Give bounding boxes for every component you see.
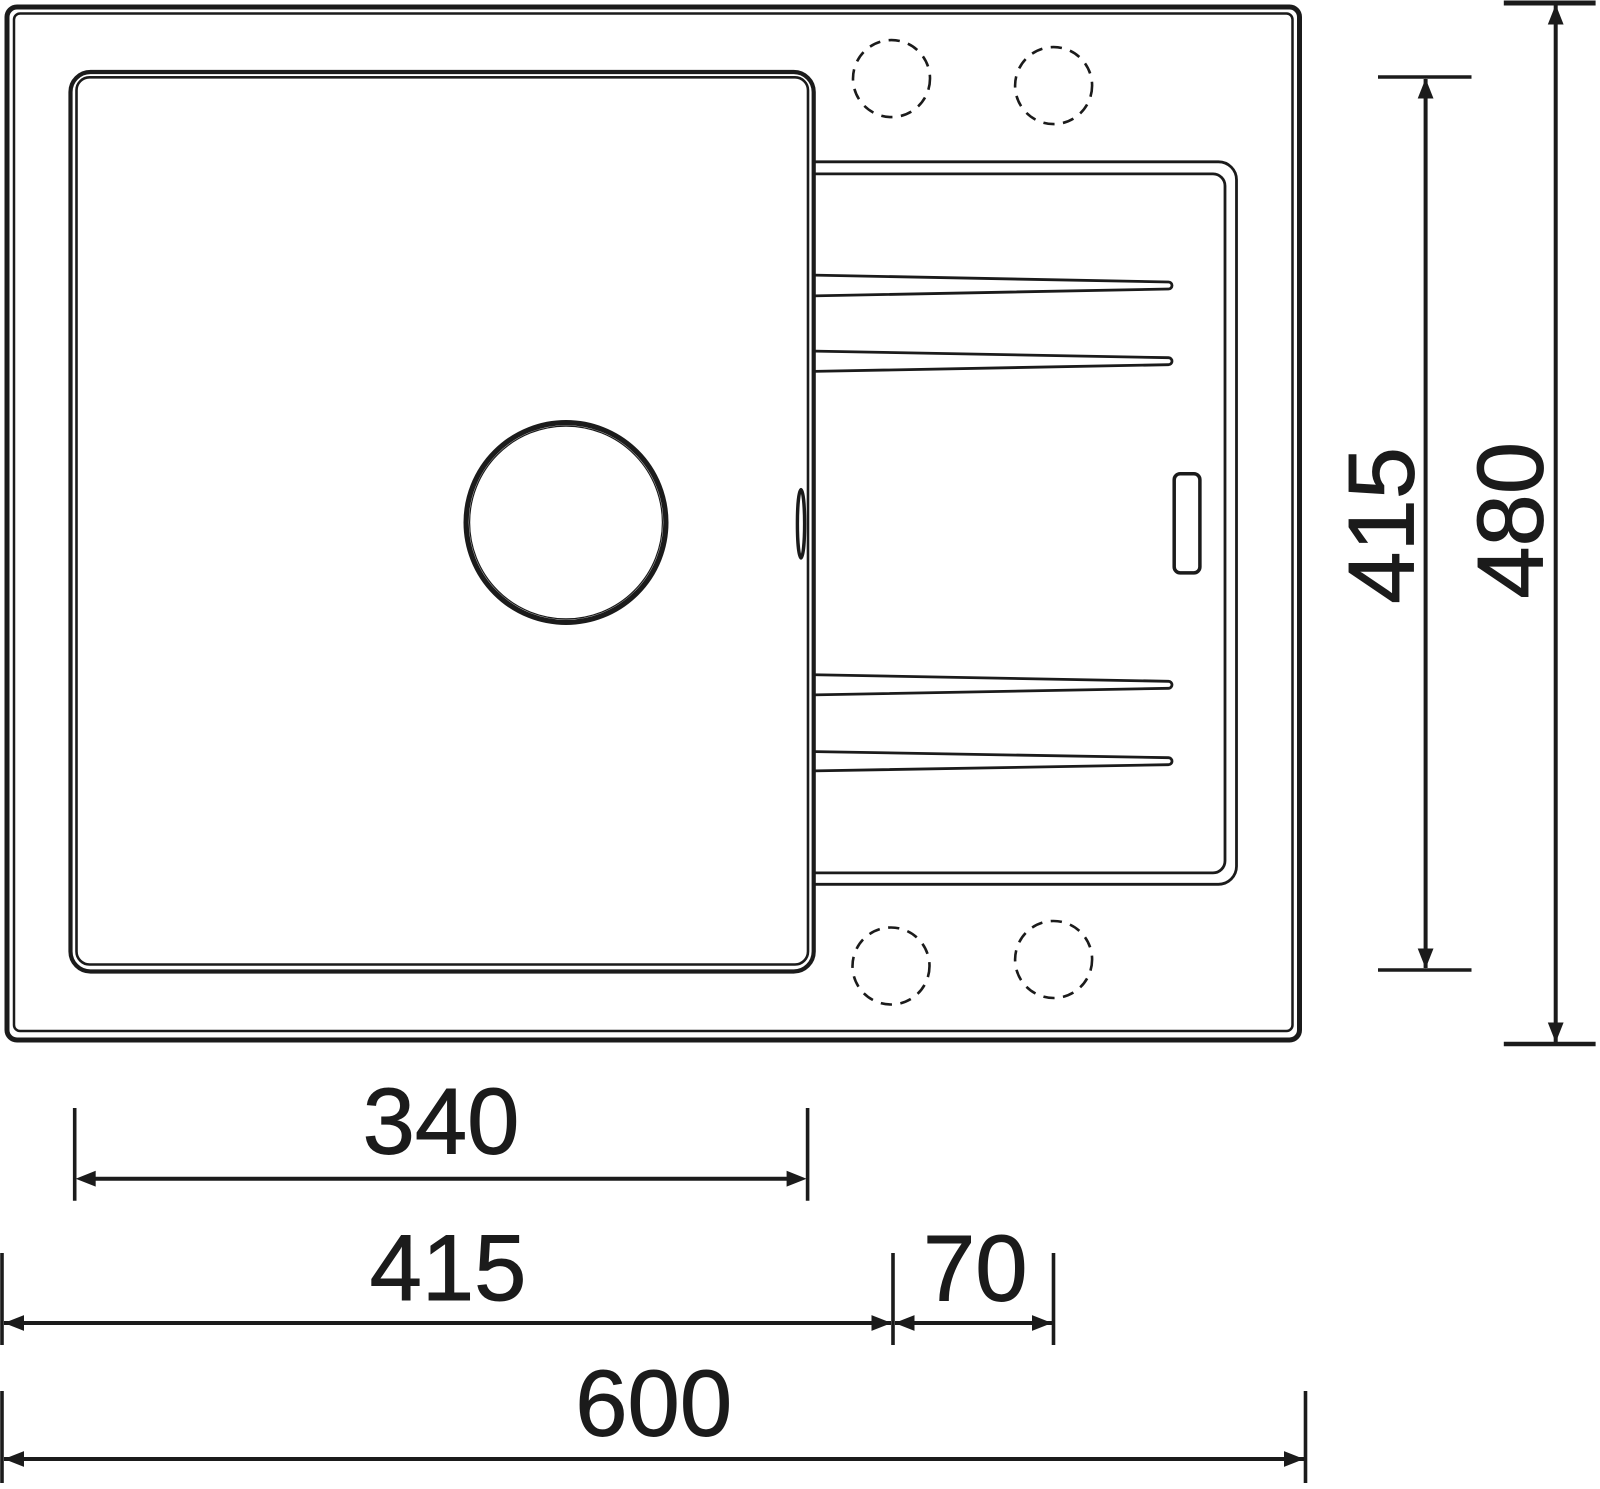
svg-text:600: 600 xyxy=(575,1351,732,1456)
svg-text:70: 70 xyxy=(923,1216,1028,1321)
svg-text:415: 415 xyxy=(370,1215,527,1320)
svg-text:340: 340 xyxy=(363,1069,520,1174)
svg-text:480: 480 xyxy=(1458,442,1563,599)
svg-text:415: 415 xyxy=(1328,447,1433,604)
